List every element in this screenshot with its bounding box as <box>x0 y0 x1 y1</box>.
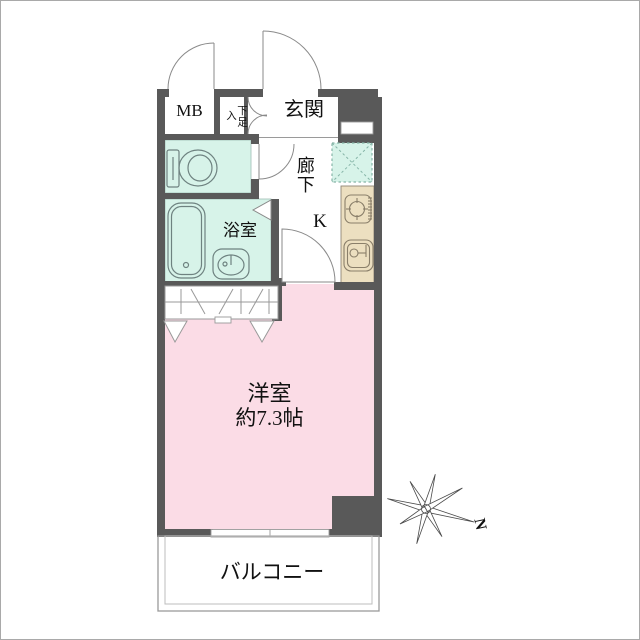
main-room-size-label: 約7.3帖 <box>165 407 374 429</box>
shoe-storage-label: 下足入 <box>225 99 247 133</box>
mb-door-arc <box>168 43 214 89</box>
pillar-top-right <box>338 89 378 143</box>
toilet-room-floor <box>165 140 251 193</box>
entrance-label: 玄関 <box>269 100 339 121</box>
entrance-window <box>341 122 373 134</box>
main-room-label: 洋室 <box>165 382 374 405</box>
balcony-label: バルコニー <box>165 561 379 583</box>
compass-north-label: N <box>469 514 489 535</box>
hallway-label: 廊下 <box>295 154 314 196</box>
floor-plan-drawing <box>1 1 639 639</box>
floor-plan: MB 下足入 玄関 廊下 K 浴室 洋室 約7.3帖 バルコニー N <box>0 0 640 640</box>
meter-box-label: MB <box>165 102 214 120</box>
kitchen-label: K <box>309 212 331 232</box>
entrance-door-arc <box>263 31 321 89</box>
pillar-bottom-right <box>332 496 378 534</box>
bathroom-label: 浴室 <box>206 222 274 240</box>
washing-machine-space-icon <box>332 143 372 182</box>
compass-icon <box>387 474 474 544</box>
